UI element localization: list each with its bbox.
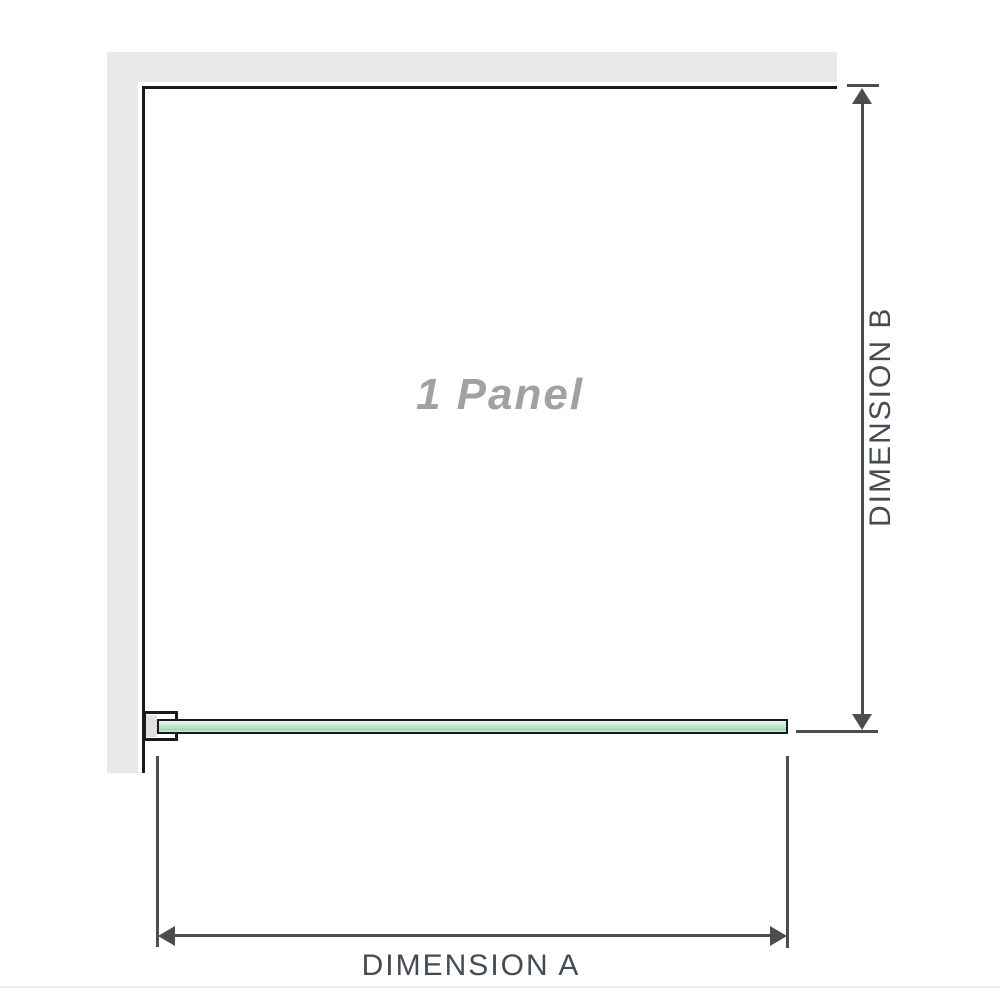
dimension-a-right-extension-line [786, 756, 789, 948]
dimension-a-label: DIMENSION A [336, 949, 606, 983]
glass-panel [157, 719, 788, 734]
dimension-b-arrow-down-icon [852, 714, 872, 730]
enclosure-left-border [142, 86, 145, 773]
dimension-b-top-tick [847, 84, 879, 87]
dimension-a-left-extension-line [156, 756, 159, 947]
enclosure-top-border [142, 86, 837, 89]
wall-bracket-insert [146, 715, 157, 737]
wall-top-band [107, 52, 837, 82]
dimension-b-bottom-tick [796, 730, 878, 733]
dimension-b-arrow-up-icon [852, 88, 872, 104]
bottom-divider [0, 986, 1000, 988]
dimension-b-label: DIMENSION B [863, 307, 899, 527]
panel-count-label: 1 Panel [350, 371, 650, 419]
dimension-a-line [170, 934, 775, 937]
panel-dimension-diagram: 1 Panel DIMENSION B DIMENSION A [0, 0, 1000, 1000]
dimension-a-arrow-left-icon [158, 926, 175, 946]
dimension-a-arrow-right-icon [770, 926, 787, 946]
wall-left-band [107, 52, 138, 773]
